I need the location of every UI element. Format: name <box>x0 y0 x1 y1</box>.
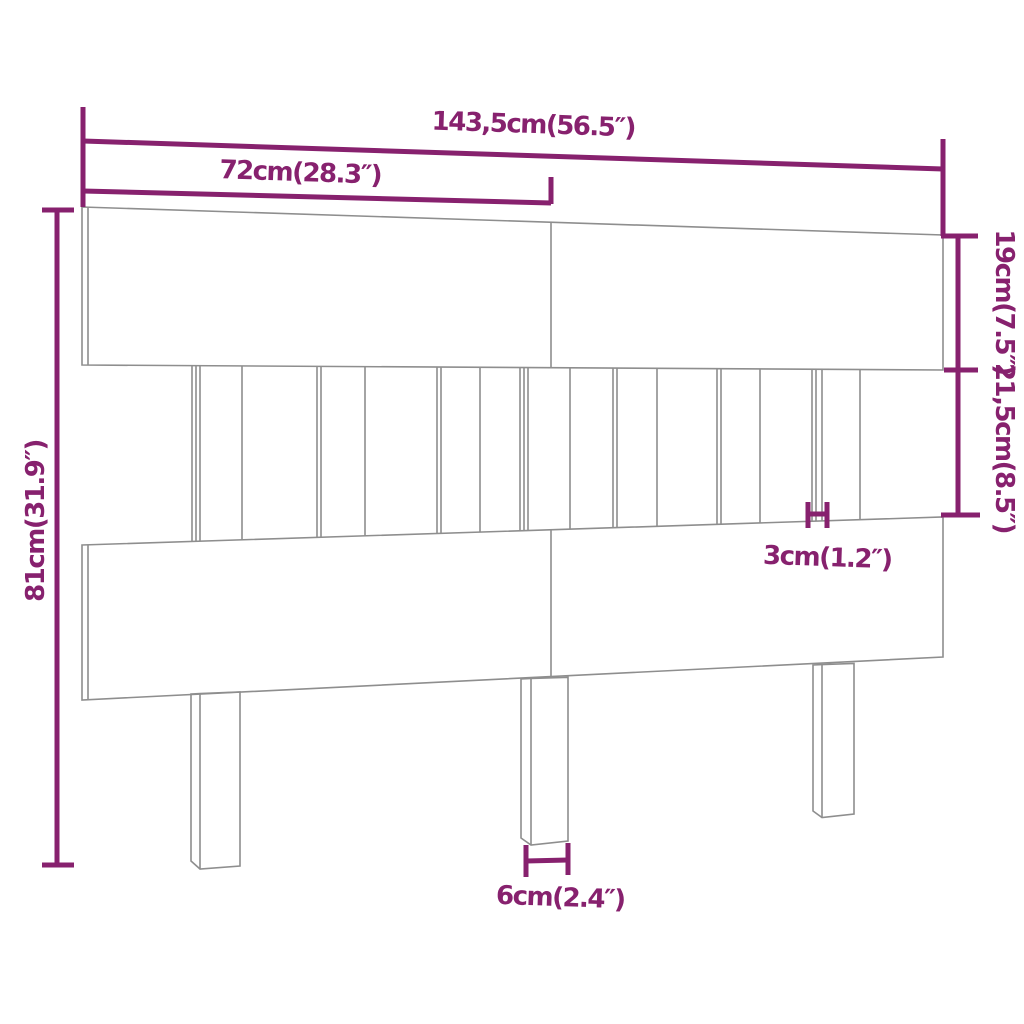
total-height-label: 81cm(31.9″) <box>21 440 51 602</box>
leg-middle <box>521 677 568 845</box>
top-board-height-label: 19cm(7.5″) <box>989 229 1019 374</box>
slat-thickness-label: 3cm(1.2″) <box>763 541 893 575</box>
dim-total-height: 81cm(31.9″) <box>21 210 74 865</box>
dim-leg-width: 6cm(2.4″) <box>496 843 626 915</box>
top-board <box>82 207 943 370</box>
leg-right <box>813 664 854 818</box>
dim-total-width: 143,5cm(56.5″) <box>83 106 943 236</box>
leg-width-label: 6cm(2.4″) <box>496 881 626 915</box>
panel-width-label: 72cm(28.3″) <box>219 155 382 191</box>
total-width-label: 143,5cm(56.5″) <box>431 106 635 143</box>
leg-left <box>191 692 240 869</box>
headboard-outline <box>82 207 943 869</box>
dimension-diagram: 143,5cm(56.5″) 72cm(28.3″) 81cm(31.9″) 1… <box>0 0 1024 1024</box>
dim-panel-width: 72cm(28.3″) <box>83 155 551 204</box>
headboard-drawing: 143,5cm(56.5″) 72cm(28.3″) 81cm(31.9″) 1… <box>0 0 1024 1024</box>
dim-right-heights: 19cm(7.5″) 21,5cm(8.5″) <box>941 229 1019 533</box>
slats <box>192 366 860 541</box>
slat-section-height-label: 21,5cm(8.5″) <box>989 363 1019 533</box>
dim-slat-thickness: 3cm(1.2″) <box>763 502 893 575</box>
